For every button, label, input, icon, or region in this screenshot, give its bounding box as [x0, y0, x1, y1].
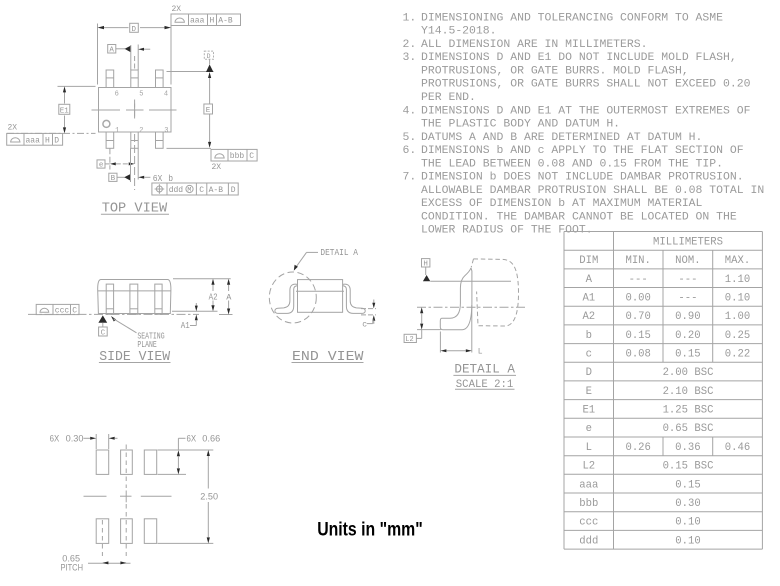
svg-text:PROTRUSIONS, OR GATE BURRS SHA: PROTRUSIONS, OR GATE BURRS SHALL NOT EXC… — [421, 78, 751, 91]
svg-text:THE LEAD BETWEEN 0.08 AND 0.15: THE LEAD BETWEEN 0.08 AND 0.15 FROM THE … — [421, 157, 723, 170]
svg-text:2.50: 2.50 — [200, 491, 218, 501]
svg-text:1.25 BSC: 1.25 BSC — [663, 405, 714, 417]
svg-text:1.00: 1.00 — [725, 311, 750, 323]
svg-text:A: A — [109, 47, 114, 55]
svg-text:D: D — [54, 136, 59, 145]
svg-text:MILLIMETERS: MILLIMETERS — [653, 236, 723, 248]
svg-text:D: D — [586, 367, 592, 379]
svg-text:0.46: 0.46 — [725, 442, 750, 454]
svg-text:bbb: bbb — [230, 152, 245, 161]
svg-text:D: D — [231, 186, 236, 195]
svg-text:ddd: ddd — [169, 186, 184, 195]
svg-text:---: --- — [678, 293, 697, 305]
svg-text:ccc: ccc — [579, 517, 598, 529]
svg-text:ccc: ccc — [55, 306, 70, 315]
svg-text:0.30: 0.30 — [66, 433, 84, 443]
svg-text:4.: 4. — [403, 104, 417, 117]
svg-text:0.70: 0.70 — [625, 311, 650, 323]
svg-text:6.: 6. — [403, 144, 417, 157]
svg-text:C: C — [101, 330, 106, 338]
svg-text:1.: 1. — [403, 11, 417, 24]
svg-text:0.22: 0.22 — [725, 349, 750, 361]
svg-text:c: c — [362, 320, 367, 329]
svg-text:A-B: A-B — [218, 17, 233, 26]
svg-text:L: L — [586, 442, 592, 454]
svg-text:0.30: 0.30 — [675, 498, 700, 510]
svg-text:A1: A1 — [582, 293, 595, 305]
svg-text:0.26: 0.26 — [625, 442, 650, 454]
svg-text:0.15: 0.15 — [675, 479, 700, 491]
svg-text:C: C — [72, 306, 77, 315]
svg-text:0.10: 0.10 — [725, 293, 750, 305]
svg-text:3.: 3. — [403, 51, 417, 64]
svg-text:2.10 BSC: 2.10 BSC — [663, 386, 714, 398]
svg-text:DIMENSIONING AND TOLERANCING C: DIMENSIONING AND TOLERANCING CONFORM TO … — [421, 11, 723, 24]
svg-text:0.36: 0.36 — [675, 442, 700, 454]
svg-text:1: 1 — [115, 127, 119, 135]
svg-text:NOM.: NOM. — [675, 255, 700, 267]
svg-text:Units in "mm": Units in "mm" — [317, 520, 423, 541]
svg-text:bbb: bbb — [579, 498, 598, 510]
svg-text:e: e — [586, 423, 592, 435]
svg-text:2.: 2. — [403, 38, 417, 51]
svg-text:MIN.: MIN. — [625, 255, 650, 267]
svg-text:---: --- — [678, 274, 697, 286]
svg-text:PER END.: PER END. — [421, 91, 476, 104]
svg-text:PROTRUSIONS, OR GATE BURRS. MO: PROTRUSIONS, OR GATE BURRS. MOLD FLASH, — [421, 64, 689, 77]
svg-text:DIMENSIONS D AND E1 AT THE OUT: DIMENSIONS D AND E1 AT THE OUTERMOST EXT… — [421, 104, 751, 117]
svg-text:4: 4 — [164, 91, 168, 99]
svg-text:DIM: DIM — [579, 255, 598, 267]
svg-text:A2: A2 — [582, 311, 595, 323]
svg-text:c: c — [586, 349, 592, 361]
svg-text:DIMENSION b DOES NOT INCLUDE D: DIMENSION b DOES NOT INCLUDE DAMBAR PROT… — [421, 171, 744, 184]
svg-text:6X: 6X — [50, 433, 60, 444]
svg-text:0.00: 0.00 — [625, 293, 650, 305]
svg-text:B: B — [111, 175, 116, 183]
svg-text:0.90: 0.90 — [675, 311, 700, 323]
svg-text:L2: L2 — [405, 336, 413, 344]
svg-text:A-B: A-B — [209, 186, 224, 195]
svg-text:0.20: 0.20 — [675, 330, 700, 342]
svg-text:EXCESS OF DIMENSION b AT MAXIM: EXCESS OF DIMENSION b AT MAXIMUM MATERIA… — [421, 197, 703, 210]
svg-text:A2: A2 — [209, 293, 218, 303]
svg-text:A: A — [226, 292, 232, 302]
svg-text:A1: A1 — [181, 321, 190, 331]
svg-text:aaa: aaa — [190, 17, 205, 26]
svg-text:E: E — [206, 107, 211, 115]
svg-text:Y14.5-2018.: Y14.5-2018. — [421, 25, 497, 38]
svg-text:0.15: 0.15 — [675, 349, 700, 361]
svg-text:6X: 6X — [153, 173, 163, 184]
svg-text:b: b — [168, 173, 173, 184]
svg-text:M: M — [187, 187, 191, 194]
svg-text:2X: 2X — [8, 124, 18, 133]
svg-text:aaa: aaa — [26, 136, 41, 145]
svg-text:3: 3 — [164, 127, 168, 135]
svg-text:CONDITION. THE DAMBAR CANNOT B: CONDITION. THE DAMBAR CANNOT BE LOCATED … — [421, 211, 737, 224]
svg-text:2X: 2X — [172, 5, 182, 14]
svg-text:A: A — [586, 274, 593, 286]
svg-text:PITCH: PITCH — [61, 562, 83, 573]
svg-text:2X: 2X — [212, 163, 222, 172]
svg-text:H: H — [45, 136, 50, 145]
svg-text:0.15 BSC: 0.15 BSC — [663, 461, 714, 473]
svg-text:L2: L2 — [582, 461, 595, 473]
svg-text:0.25: 0.25 — [725, 330, 750, 342]
svg-text:ALL DIMENSION ARE IN MILLIMETE: ALL DIMENSION ARE IN MILLIMETERS. — [421, 38, 648, 51]
svg-text:E1: E1 — [582, 405, 595, 417]
svg-text:2: 2 — [139, 127, 143, 135]
svg-text:D: D — [207, 53, 211, 60]
svg-text:MAX.: MAX. — [725, 255, 750, 267]
svg-text:2.00 BSC: 2.00 BSC — [663, 367, 714, 379]
svg-text:0.10: 0.10 — [675, 517, 700, 529]
svg-text:DIMENSIONS D AND E1 DO NOT INC: DIMENSIONS D AND E1 DO NOT INCLUDE MOLD … — [421, 51, 737, 64]
svg-text:0.15: 0.15 — [625, 330, 650, 342]
svg-text:ddd: ddd — [579, 535, 598, 547]
svg-text:0.08: 0.08 — [625, 349, 650, 361]
svg-text:7.: 7. — [403, 171, 417, 184]
svg-text:5.: 5. — [403, 131, 417, 144]
svg-text:DIMENSIONS b AND c APPLY TO TH: DIMENSIONS b AND c APPLY TO THE FLAT SEC… — [421, 144, 744, 157]
svg-text:e: e — [99, 162, 104, 170]
svg-text:THE PLASTIC BODY AND DATUM H.: THE PLASTIC BODY AND DATUM H. — [421, 118, 620, 131]
svg-text:DETAIL A: DETAIL A — [320, 248, 358, 259]
svg-text:5: 5 — [139, 91, 143, 99]
svg-text:E1: E1 — [60, 107, 70, 115]
svg-text:aaa: aaa — [579, 479, 598, 491]
svg-text:LOWER RADIUS OF THE FOOT.: LOWER RADIUS OF THE FOOT. — [421, 224, 593, 237]
svg-text:C: C — [199, 186, 204, 195]
svg-text:L: L — [478, 348, 483, 357]
svg-text:1.10: 1.10 — [725, 274, 750, 286]
svg-text:D: D — [132, 26, 137, 34]
svg-text:E: E — [586, 386, 592, 398]
svg-text:C: C — [249, 152, 254, 161]
svg-text:0.66: 0.66 — [202, 433, 220, 443]
svg-text:H: H — [210, 17, 215, 26]
svg-text:b: b — [586, 330, 592, 342]
svg-text:6: 6 — [115, 91, 119, 99]
svg-text:6X: 6X — [187, 433, 197, 444]
svg-text:0.10: 0.10 — [675, 535, 700, 547]
svg-text:ALLOWABLE DAMBAR PROTRUSION SH: ALLOWABLE DAMBAR PROTRUSION SHALL BE 0.0… — [421, 184, 764, 197]
svg-text:DATUMS A AND B ARE DETERMINED: DATUMS A AND B ARE DETERMINED AT DATUM H… — [421, 131, 702, 144]
svg-text:0.65 BSC: 0.65 BSC — [663, 423, 714, 435]
svg-text:DETAIL A: DETAIL A — [454, 362, 515, 377]
svg-text:---: --- — [629, 274, 648, 286]
